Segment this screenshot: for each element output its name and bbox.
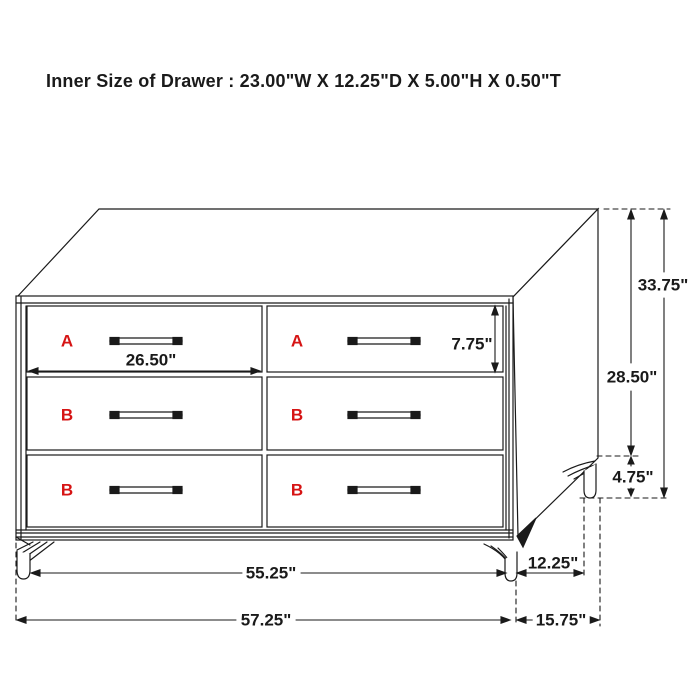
dresser-line-drawing bbox=[0, 0, 700, 700]
dimension-label-case-height: 28.50" bbox=[607, 369, 658, 386]
drawer-letter-top-left: A bbox=[61, 333, 73, 350]
drawer-letter-bottom-right: B bbox=[291, 482, 303, 499]
dimension-label-depth-between-legs: 12.25" bbox=[528, 555, 579, 572]
dim-total-height bbox=[661, 210, 667, 497]
drawer-handle bbox=[110, 412, 182, 419]
dimension-diagram-page: Inner Size of Drawer : 23.00"W X 12.25"D… bbox=[0, 0, 700, 700]
dimension-label-total-height: 33.75" bbox=[638, 277, 689, 294]
dimension-label-total-width: 57.25" bbox=[238, 612, 295, 629]
dimension-label-drawer-height: 7.75" bbox=[451, 336, 492, 353]
drawer-letter-middle-right: B bbox=[291, 407, 303, 424]
dresser-top-face bbox=[17, 209, 598, 297]
drawer-handle bbox=[110, 487, 182, 494]
drawer-letter-top-right: A bbox=[291, 333, 303, 350]
dimension-label-drawer-width: 26.50" bbox=[126, 352, 177, 369]
dim-case-height bbox=[628, 210, 634, 455]
dimension-label-width-between-legs: 55.25" bbox=[243, 565, 300, 582]
drawer-handle bbox=[348, 338, 420, 345]
drawer-letter-bottom-left: B bbox=[61, 482, 73, 499]
drawer-letter-middle-left: B bbox=[61, 407, 73, 424]
drawer-handle bbox=[348, 487, 420, 494]
drawer-handle bbox=[348, 412, 420, 419]
drawer-handle bbox=[110, 338, 182, 345]
dimension-label-total-depth: 15.75" bbox=[533, 612, 590, 629]
dimension-label-leg-height: 4.75" bbox=[612, 469, 653, 486]
